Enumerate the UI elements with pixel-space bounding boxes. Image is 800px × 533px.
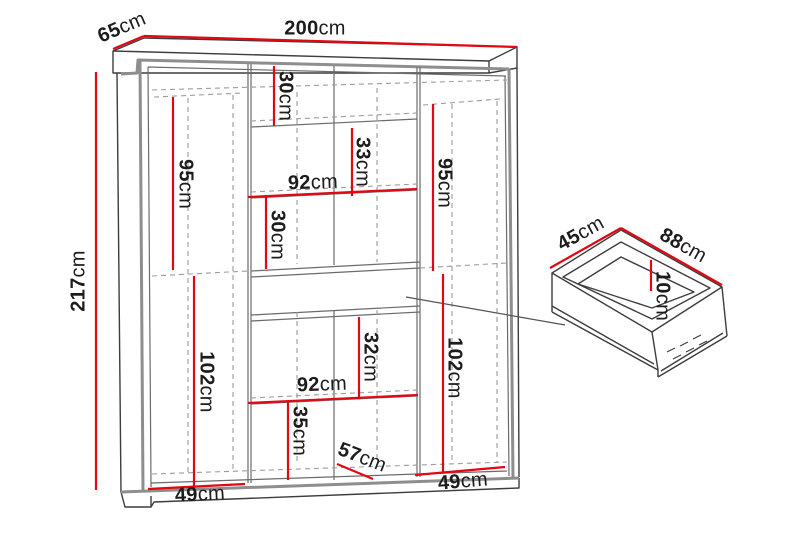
left-rail (154, 93, 243, 97)
dim-right-lower-102: 102cm (443, 337, 466, 399)
drawer-front-face (552, 273, 658, 370)
wardrobe-interior (148, 64, 509, 487)
drawer-band (251, 262, 420, 321)
right-column-hidden (452, 101, 497, 464)
dim-shelf-30-lower: 30cm (266, 210, 289, 260)
back-top-edge (152, 80, 507, 90)
left-side-edge (117, 73, 121, 492)
left-divider (248, 64, 251, 483)
line-drawing (0, 0, 800, 533)
dim-left-lower-102: 102cm (195, 351, 218, 413)
dim-line-92-lower (248, 395, 418, 403)
dim-top-shelf-30: 30cm (274, 71, 297, 121)
dim-right-upper-95: 95cm (433, 158, 456, 208)
frame-top (121, 60, 509, 74)
hidden-edges (152, 80, 507, 474)
dim-middle-width-92-upper: 92cm (288, 171, 339, 196)
drawer-leader (406, 297, 565, 325)
leader-line (406, 297, 565, 325)
right-rail (423, 99, 500, 105)
dim-height-217: 217cm (68, 250, 91, 312)
right-divider (417, 67, 420, 477)
dim-right-width-49: 49cm (437, 468, 489, 495)
drawer-floor (578, 257, 694, 308)
right-side-edge (517, 68, 519, 477)
wardrobe-dimension-diagram: 65cm 200cm 217cm 95cm 30cm 33cm 92cm 30c… (0, 0, 800, 533)
frame-inner-edges (148, 67, 509, 487)
frame-left (140, 61, 143, 491)
dim-left-width-49: 49cm (174, 482, 225, 508)
dim-left-upper-95: 95cm (174, 159, 197, 209)
dim-shelf-32: 32cm (359, 332, 382, 382)
left-mid-edge (152, 271, 248, 276)
dim-width-200: 200cm (284, 18, 346, 41)
dim-middle-width-92-lower: 92cm (297, 373, 348, 398)
wardrobe-frame (121, 60, 519, 492)
dim-shelf-35: 35cm (288, 406, 311, 456)
dim-shelf-33: 33cm (351, 137, 374, 187)
frame-right (509, 69, 513, 478)
dim-drawer-height-10: 10cm (651, 271, 674, 321)
